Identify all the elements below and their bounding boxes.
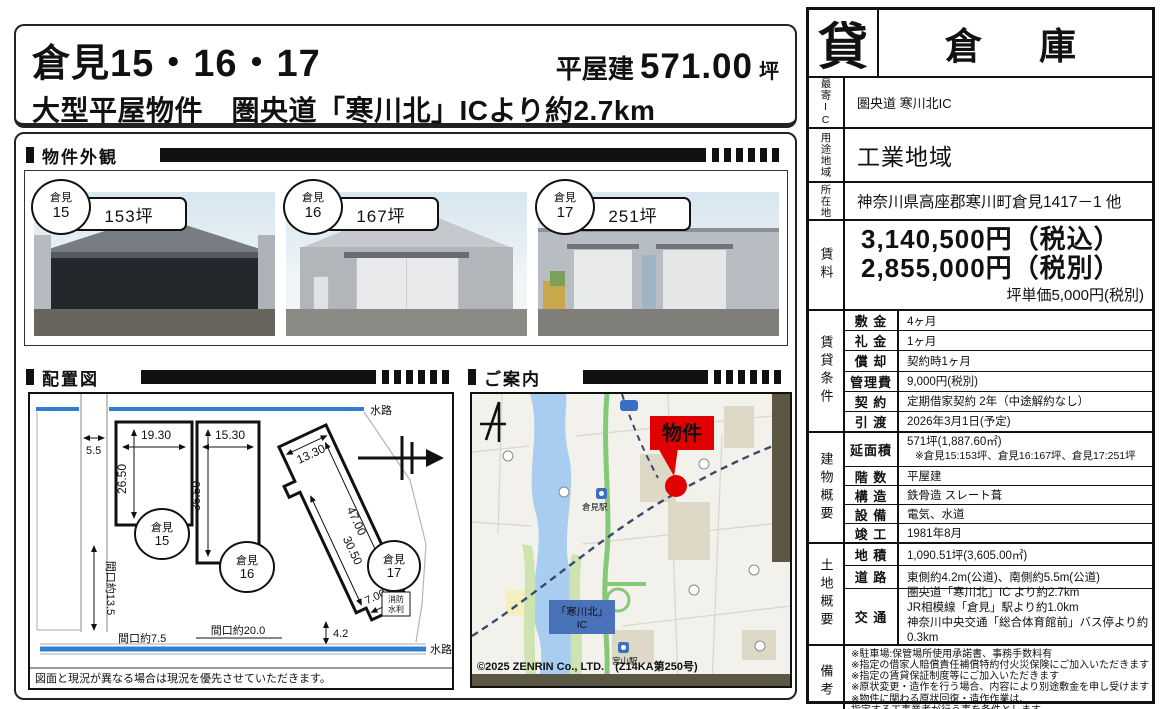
rent-excl-tax: 2,855,000円（税別）: [861, 254, 1144, 283]
waterway-label: 水路: [370, 404, 392, 417]
section-bar: [583, 370, 708, 384]
photo-strip: 153坪 倉見 15 167坪 倉見 16 251坪 倉見 17: [24, 170, 788, 346]
total-size: 平屋建 571.00 坪: [556, 47, 779, 87]
notes-text: ※駐車場:保管場所使用承諾書、事務手数料有 ※指定の借家人賠償責任補償特約付火災…: [845, 646, 1153, 709]
plan-note: 図面と現況が異なる場合は現況を優先させていただきます。: [35, 671, 331, 685]
land-row-access: 交 通 圏央道「寒川北」IC より約2.7km JR相模線「倉見」駅より約1.0…: [845, 588, 1152, 644]
lease-value: 定期借家契約 2年（中途解約なし）: [899, 392, 1152, 411]
note-line: ※指定の借家人賠償責任補償特約付火災保険にご加入いただきます: [851, 660, 1149, 671]
ground: [286, 309, 527, 336]
ground: [538, 309, 779, 336]
land-row-road: 道 路 東側約4.2m(公道)、南側約5.5m(公道): [845, 565, 1152, 587]
lease-row-handover: 引 渡 2026年3月1日(予定): [845, 411, 1152, 431]
lease-key: 契 約: [845, 392, 899, 411]
b16-badge-no: 16: [240, 566, 254, 581]
sliding-door: [663, 250, 726, 309]
warehouse-opening: [51, 258, 258, 310]
land-summary-label: 土地概要: [809, 544, 845, 644]
site-plan-drawing: 水路 5.5 19.30 26.50 倉見 15 15.30 36.50: [30, 394, 452, 688]
section-header-plan: 配置図: [26, 368, 454, 386]
section-dashes: [714, 370, 786, 384]
section-stub-icon: [468, 369, 476, 385]
lease-row-mgmt-fee: 管理費 9,000円(税別): [845, 371, 1152, 391]
lease-value: 1ヶ月: [899, 331, 1152, 350]
rent-values: 3,140,500円（税込） 2,855,000円（税別） 坪単価5,000円(…: [845, 221, 1152, 309]
b16-width-dim: 15.30: [215, 428, 245, 442]
spec-header: 貸 倉 庫: [809, 10, 1152, 76]
expressway-band: [472, 674, 790, 686]
fire-water-label: 水利: [388, 604, 404, 614]
frontage-left-dim: 間口約13.5: [104, 561, 118, 615]
land-row-area: 地 積 1,090.51坪(3,605.00㎡): [845, 544, 1152, 565]
note-line: 指定する工事業者が行う事を条件とします: [851, 705, 1149, 709]
building-row-utilities: 設 備 電気、水道: [845, 504, 1152, 523]
lease-value: 4ヶ月: [899, 311, 1152, 330]
building-value: 571坪(1,887.60㎡) ※倉見15:153坪、倉見16:167坪、倉見1…: [899, 433, 1152, 466]
sliding-door: [574, 250, 632, 309]
row-notes: 備考 ※駐車場:保管場所使用承諾書、事務手数料有 ※指定の借家人賠償責任補償特約…: [809, 644, 1152, 709]
ic-label-line1: 「寒川北」: [556, 605, 609, 618]
lease-value: 契約時1ヶ月: [899, 351, 1152, 370]
building-summary-label: 建物概要: [809, 433, 845, 542]
page-subtitle: 大型平屋物件 圏央道「寒川北」ICより約2.7km: [32, 89, 779, 129]
building-value: 電気、水道: [899, 505, 1152, 523]
section-stub-icon: [26, 369, 34, 385]
note-line: ※指定の賃貸保証制度等にご加入いただきます: [851, 671, 1149, 682]
rent-unit-price: 坪単価5,000円(税別): [861, 284, 1144, 305]
floor-area-total: 571坪(1,887.60㎡): [907, 435, 1002, 450]
lease-value: 2026年3月1日(予定): [899, 412, 1152, 431]
building-key: 延面積: [845, 433, 899, 466]
row-zoning: 用途地域 工業地域: [809, 127, 1152, 181]
row-rent: 賃料 3,140,500円（税込） 2,855,000円（税別） 坪単価5,00…: [809, 219, 1152, 309]
badge-number: 17: [557, 205, 574, 221]
notes-label: 備考: [809, 646, 845, 709]
zoning-label: 用途地域: [809, 129, 845, 181]
lease-key: 管理費: [845, 372, 899, 391]
section-dashes: [382, 370, 454, 384]
section-header-photos: 物件外観: [26, 146, 784, 164]
warehouse-pillar: [258, 235, 275, 310]
guide-map-drawing: 倉見駅 宮山駅 「寒川北」 IC 物件 ©2025 ZENRIN Co., LT…: [472, 394, 790, 686]
access-line: JR相模線「倉見」駅より約1.0km: [907, 601, 1079, 616]
north-symbol-icon: [358, 436, 444, 480]
lease-row-key-money: 礼 金 1ヶ月: [845, 330, 1152, 350]
row-address: 所在地 神奈川県高座郡寒川町倉見1417－1 他: [809, 181, 1152, 219]
b17-badge-name: 倉見: [383, 552, 405, 566]
page-title: 倉見15・16・17: [32, 32, 321, 87]
size-unit: 坪: [759, 55, 779, 84]
nearest-ic-label: 最寄IC: [809, 78, 845, 127]
building-value: 1981年8月: [899, 524, 1152, 542]
flyer-page: 倉見15・16・17 平屋建 571.00 坪 大型平屋物件 圏央道「寒川北」I…: [0, 0, 1161, 709]
note-line: ※駐車場:保管場所使用承諾書、事務手数料有: [851, 649, 1149, 660]
b16-badge-name: 倉見: [236, 553, 258, 567]
address-value: 神奈川県高座郡寒川町倉見1417－1 他: [845, 183, 1152, 219]
group-land-summary: 土地概要 地 積 1,090.51坪(3,605.00㎡) 道 路 東側約4.2…: [809, 542, 1152, 644]
section-dashes: [712, 148, 784, 162]
land-key: 道 路: [845, 566, 899, 587]
building-row-floors: 階 数 平屋建: [845, 466, 1152, 485]
frontage-bottom-mid-dim: 間口約20.0: [211, 623, 265, 637]
section-bar: [160, 148, 706, 162]
note-line: ※物件に関わる原状回復・造作作業は、: [851, 694, 1149, 705]
b15-badge-name: 倉見: [151, 520, 173, 534]
building-value: 平屋建: [899, 467, 1152, 485]
building-key: 構 造: [845, 486, 899, 504]
access-line: 圏央道「寒川北」IC より約2.7km: [907, 586, 1079, 601]
section-title: 物件外観: [42, 143, 118, 168]
b15-width-dim: 19.30: [141, 428, 171, 442]
for-rent-tag: 貸: [809, 10, 879, 76]
station-icon-dot: [599, 491, 604, 496]
lease-row-contract: 契 約 定期借家契約 2年（中途解約なし）: [845, 391, 1152, 411]
sliding-doors: [356, 258, 459, 310]
size-value: 571.00: [640, 47, 753, 87]
building-key: 竣 工: [845, 524, 899, 542]
lease-key: 敷 金: [845, 311, 899, 330]
section-stub-icon: [26, 147, 34, 163]
frontage-bottom-left-dim: 間口約7.5: [118, 631, 166, 645]
lease-key: 礼 金: [845, 331, 899, 350]
side-door: [642, 255, 656, 308]
group-building-summary: 建物概要 延面積 571坪(1,887.60㎡) ※倉見15:153坪、倉見16…: [809, 431, 1152, 542]
nearest-ic-value: 圏央道 寒川北IC: [845, 78, 1152, 127]
b15-depth-dim: 26.50: [115, 464, 129, 494]
size-prefix: 平屋建: [556, 49, 634, 86]
lease-row-deposit: 敷 金 4ヶ月: [845, 311, 1152, 330]
zoning-value: 工業地域: [845, 129, 1152, 181]
b17-badge-no: 17: [387, 565, 401, 580]
section-bar: [141, 370, 376, 384]
access-line: 神奈川中央交通「総合体育館前」バス停より約0.3km: [907, 616, 1152, 646]
property-callout-label: 物件: [662, 421, 702, 445]
rent-incl-tax: 3,140,500円（税込）: [861, 225, 1144, 254]
land-key: 地 積: [845, 544, 899, 565]
section-title: ご案内: [484, 365, 541, 390]
stored-goods: [550, 271, 564, 285]
ic-label-line2: IC: [577, 619, 588, 631]
section-header-map: ご案内: [468, 368, 786, 386]
land-value: 1,090.51坪(3,605.00㎡): [899, 544, 1152, 565]
side-door: [313, 276, 330, 311]
waterway-label: 水路: [430, 643, 452, 656]
building-value: 鉄骨造 スレート葺: [899, 486, 1152, 504]
ground: [34, 309, 275, 336]
land-key: 交 通: [845, 589, 899, 644]
building-key: 設 備: [845, 505, 899, 523]
building-row-floor-area: 延面積 571坪(1,887.60㎡) ※倉見15:153坪、倉見16:167坪…: [845, 433, 1152, 466]
door-split-line: [406, 258, 407, 310]
group-lease-terms: 賃貸条件 敷 金 4ヶ月 礼 金 1ヶ月 償 却 契約時1ヶ月 管理費 9,00…: [809, 309, 1152, 431]
address-label: 所在地: [809, 183, 845, 219]
section-title: 配置図: [42, 365, 99, 390]
land-value: 圏央道「寒川北」IC より約2.7km JR相模線「倉見」駅より約1.0km 神…: [899, 589, 1152, 644]
property-category: 倉 庫: [879, 10, 1152, 76]
name-badge: 倉見 15: [31, 179, 91, 235]
lease-value: 9,000円(税別): [899, 372, 1152, 391]
building-key: 階 数: [845, 467, 899, 485]
warehouse-pillar: [34, 235, 51, 310]
gap-dim: 4.2: [333, 628, 348, 640]
building-row-completed: 竣 工 1981年8月: [845, 523, 1152, 542]
lease-key: 引 渡: [845, 412, 899, 431]
station-label: 倉見駅: [582, 502, 608, 512]
header-box: 倉見15・16・17 平屋建 571.00 坪 大型平屋物件 圏央道「寒川北」I…: [14, 24, 797, 128]
lease-key: 償 却: [845, 351, 899, 370]
note-line: ※原状変更・造作を行う場合、内容により別途敷金を申し受けます: [851, 682, 1149, 693]
expressway-band: [772, 394, 790, 562]
map-copyright: ©2025 ZENRIN Co., LTD. (Z14KA第250号): [477, 659, 698, 673]
land-value: 東側約4.2m(公道)、南側約5.5m(公道): [899, 566, 1152, 587]
spec-panel: 貸 倉 庫 最寄IC 圏央道 寒川北IC 用途地域 工業地域 所在地 神奈川県高…: [806, 7, 1155, 704]
door-canopy: [656, 244, 733, 249]
badge-number: 16: [305, 205, 322, 221]
badge-number: 15: [53, 205, 70, 221]
main-content-box: 物件外観: [14, 132, 797, 700]
rent-label: 賃料: [809, 221, 845, 309]
floor-area-breakdown: ※倉見15:153坪、倉見16:167坪、倉見17:251坪: [907, 450, 1136, 464]
name-badge: 倉見 17: [535, 179, 595, 235]
property-marker-dot: [665, 475, 687, 497]
b15-badge-no: 15: [155, 533, 169, 548]
fire-water-label: 消防: [388, 594, 404, 604]
building-row-structure: 構 造 鉄骨造 スレート葺: [845, 485, 1152, 504]
site-plan: 水路 5.5 19.30 26.50 倉見 15 15.30 36.50: [28, 392, 454, 690]
road-width-dim: 5.5: [86, 445, 101, 457]
lease-row-amortization: 償 却 契約時1ヶ月: [845, 350, 1152, 370]
route-shield-icon: [620, 400, 638, 411]
station-icon-dot: [621, 645, 626, 650]
green-route: [605, 394, 608, 686]
row-nearest-ic: 最寄IC 圏央道 寒川北IC: [809, 76, 1152, 127]
guide-map: 倉見駅 宮山駅 「寒川北」 IC 物件 ©2025 ZENRIN Co., LT…: [470, 392, 792, 688]
b16-depth-dim: 36.50: [189, 481, 203, 511]
door-canopy: [567, 244, 639, 249]
name-badge: 倉見 16: [283, 179, 343, 235]
lease-terms-label: 賃貸条件: [809, 311, 845, 431]
